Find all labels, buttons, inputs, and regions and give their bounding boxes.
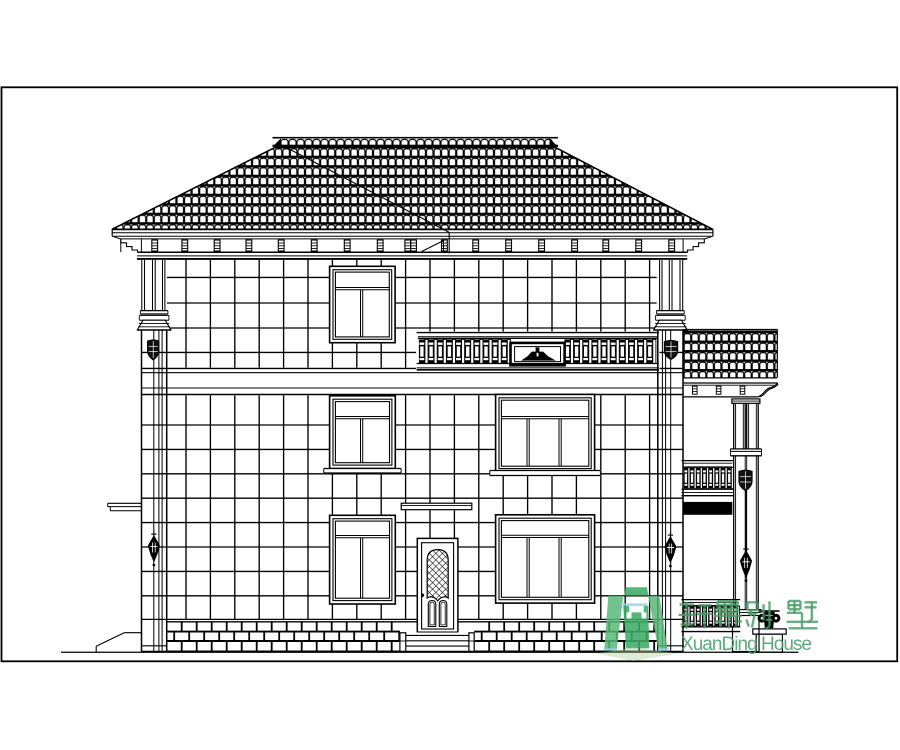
svg-text:XuanDing House: XuanDing House <box>681 634 812 655</box>
